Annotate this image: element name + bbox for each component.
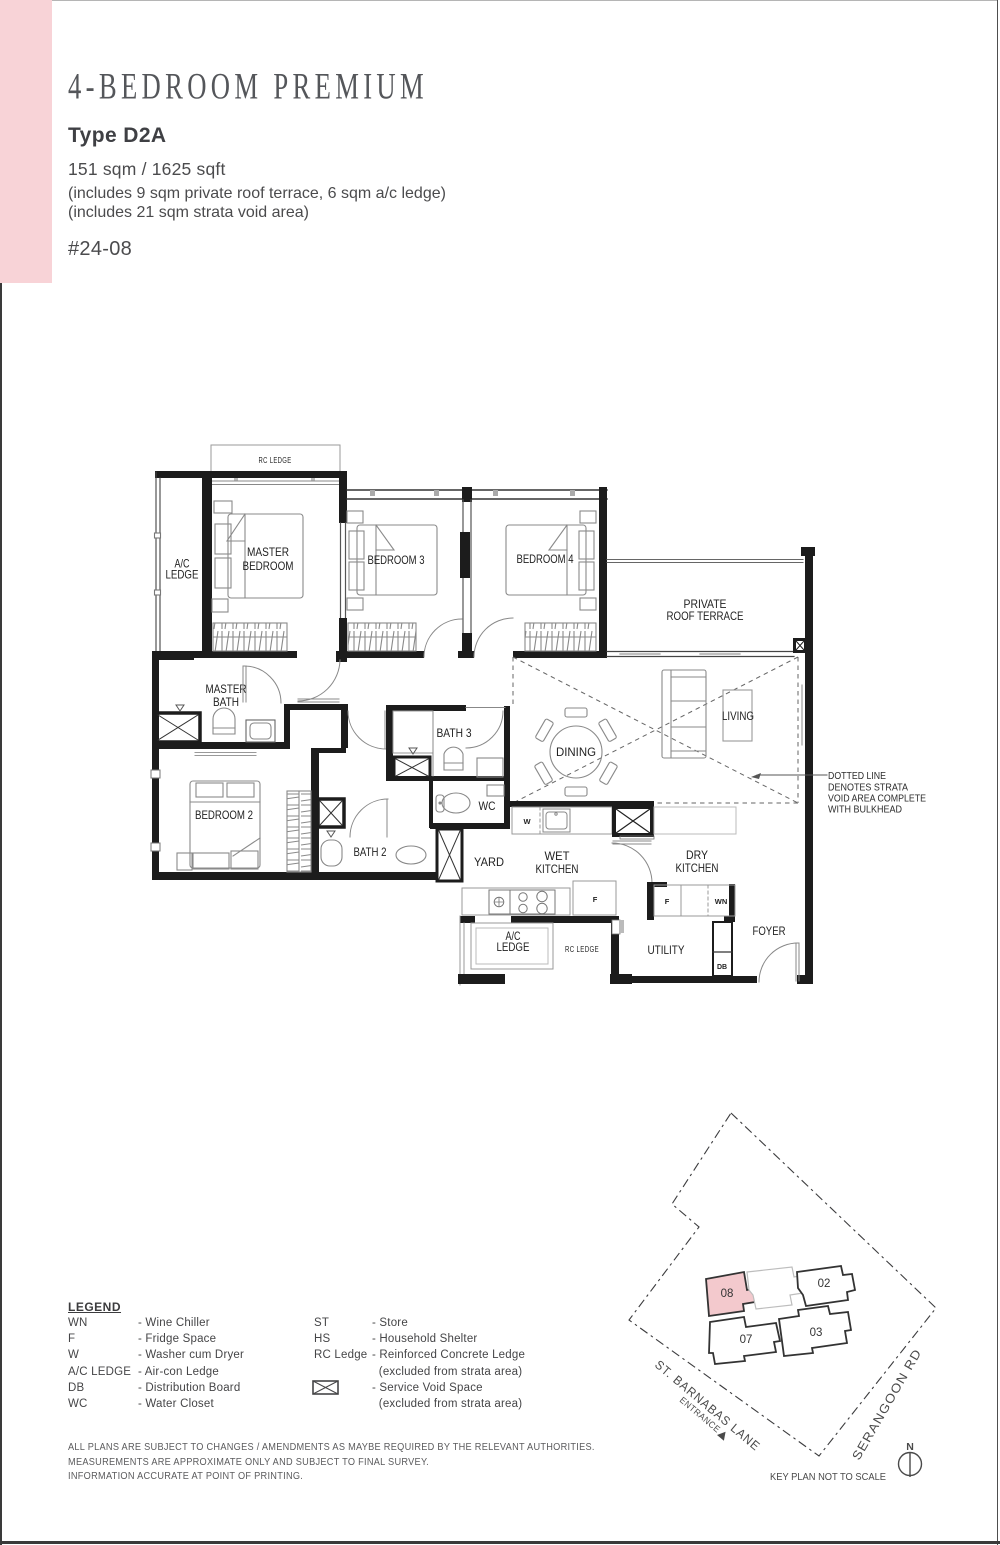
svg-text:BEDROOM 2: BEDROOM 2 — [195, 808, 253, 822]
svg-text:W: W — [523, 817, 531, 826]
svg-text:DB: DB — [717, 964, 727, 971]
svg-text:F: F — [665, 897, 670, 906]
svg-text:03: 03 — [810, 1327, 823, 1339]
svg-text:KEY PLAN NOT TO SCALE: KEY PLAN NOT TO SCALE — [770, 1471, 886, 1483]
svg-text:WITH BULKHEAD: WITH BULKHEAD — [828, 804, 902, 816]
svg-text:ST. BARNABAS LANE: ST. BARNABAS LANE — [652, 1358, 763, 1454]
svg-text:WET: WET — [545, 849, 571, 863]
svg-text:WN: WN — [715, 897, 728, 906]
svg-text:UTILITY: UTILITY — [648, 943, 685, 957]
svg-text:LEDGE: LEDGE — [166, 568, 199, 582]
svg-text:WC: WC — [479, 799, 496, 813]
svg-text:F: F — [593, 895, 598, 904]
svg-text:08: 08 — [721, 1288, 734, 1300]
svg-text:LIVING: LIVING — [722, 709, 754, 723]
svg-text:RC LEDGE: RC LEDGE — [259, 455, 292, 465]
svg-text:07: 07 — [740, 1334, 753, 1346]
svg-text:LEDGE: LEDGE — [497, 940, 530, 954]
svg-text:RC LEDGE: RC LEDGE — [565, 944, 599, 954]
svg-text:MASTER: MASTER — [247, 545, 289, 559]
svg-text:ROOF TERRACE: ROOF TERRACE — [667, 609, 744, 623]
svg-text:BATH 3: BATH 3 — [437, 726, 472, 740]
svg-text:YARD: YARD — [474, 855, 504, 869]
svg-text:BATH 2: BATH 2 — [354, 845, 387, 859]
svg-text:02: 02 — [818, 1278, 831, 1290]
svg-text:DINING: DINING — [556, 745, 596, 759]
svg-text:KITCHEN: KITCHEN — [536, 862, 579, 876]
svg-text:DOTTED LINE: DOTTED LINE — [828, 770, 886, 782]
svg-text:BATH: BATH — [213, 695, 239, 709]
svg-text:N: N — [906, 1441, 914, 1453]
svg-text:FOYER: FOYER — [753, 924, 786, 938]
svg-text:BEDROOM 4: BEDROOM 4 — [517, 552, 574, 566]
svg-text:KITCHEN: KITCHEN — [676, 861, 719, 875]
svg-text:MASTER: MASTER — [206, 682, 247, 696]
svg-text:BEDROOM 3: BEDROOM 3 — [368, 553, 425, 567]
svg-text:DRY: DRY — [686, 848, 708, 862]
svg-text:BEDROOM: BEDROOM — [243, 559, 294, 573]
